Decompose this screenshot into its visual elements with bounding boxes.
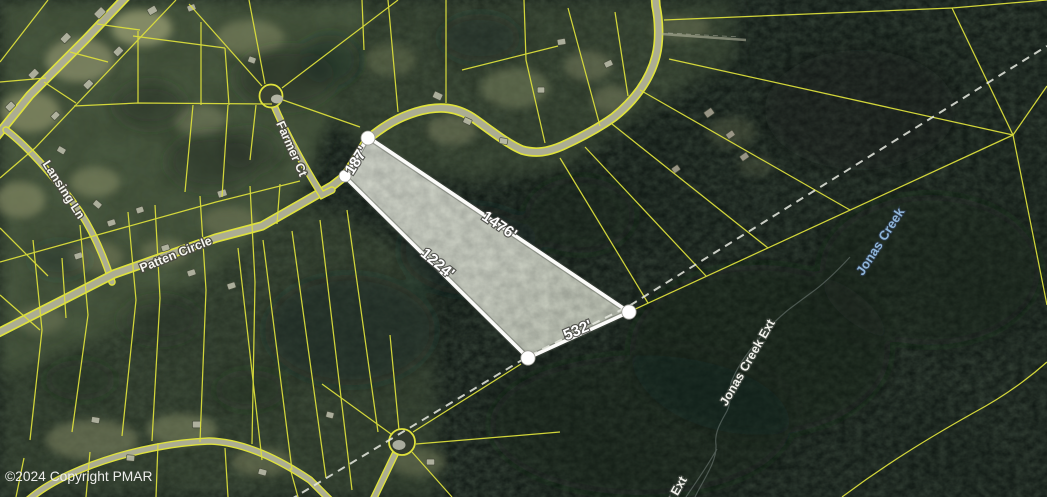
svg-text:©2024 Copyright PMAR: ©2024 Copyright PMAR xyxy=(5,469,152,484)
